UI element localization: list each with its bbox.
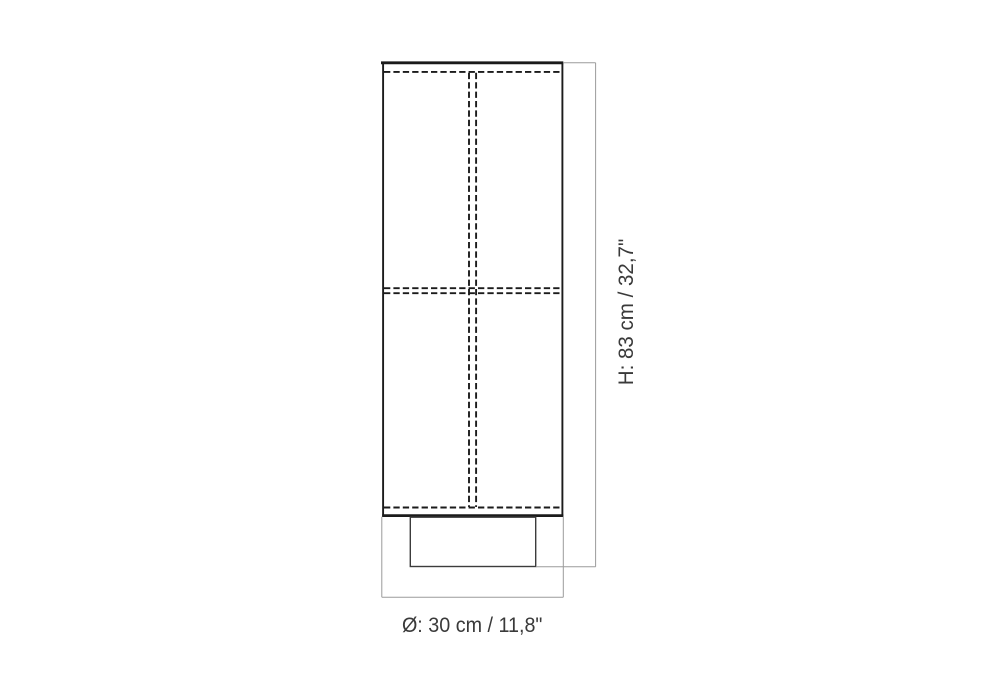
svg-text:Ø: 30 cm / 11,8": Ø: 30 cm / 11,8": [402, 614, 543, 637]
svg-text:H: 83 cm / 32,7": H: 83 cm / 32,7": [615, 239, 638, 386]
